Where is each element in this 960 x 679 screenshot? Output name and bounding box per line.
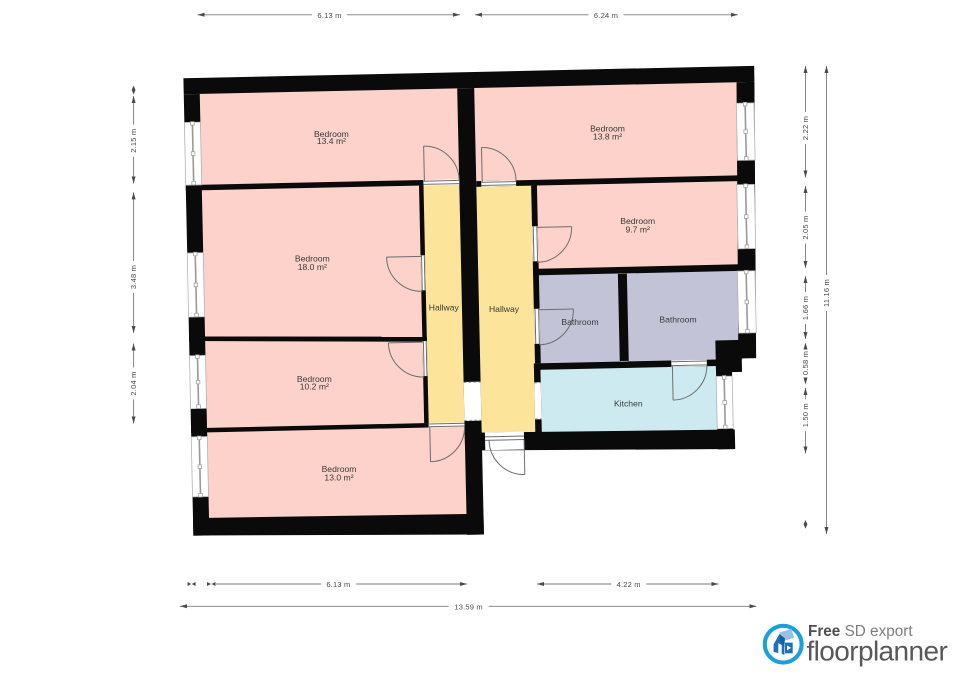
svg-text:13.4 m²: 13.4 m² bbox=[317, 136, 346, 146]
svg-text:1.50 m: 1.50 m bbox=[801, 403, 810, 427]
svg-text:Hallway: Hallway bbox=[489, 304, 520, 314]
svg-text:2.04 m: 2.04 m bbox=[129, 371, 138, 395]
svg-text:6.13 m: 6.13 m bbox=[317, 11, 341, 20]
svg-text:13.0 m²: 13.0 m² bbox=[324, 473, 353, 483]
svg-text:2.05 m: 2.05 m bbox=[801, 216, 810, 240]
svg-text:2.15 m: 2.15 m bbox=[129, 129, 138, 153]
svg-text:Kitchen: Kitchen bbox=[614, 398, 643, 408]
svg-text:floorplanner: floorplanner bbox=[807, 636, 948, 667]
svg-text:1.66 m: 1.66 m bbox=[801, 296, 810, 320]
svg-text:2.22 m: 2.22 m bbox=[801, 116, 810, 140]
svg-text:Bathroom: Bathroom bbox=[561, 317, 598, 327]
svg-text:6.13 m: 6.13 m bbox=[326, 580, 350, 589]
svg-text:9.7 m²: 9.7 m² bbox=[626, 224, 650, 234]
svg-text:18.0 m²: 18.0 m² bbox=[298, 262, 327, 272]
svg-text:3.48 m: 3.48 m bbox=[129, 265, 138, 289]
svg-text:Hallway: Hallway bbox=[429, 303, 460, 313]
svg-text:13.8 m²: 13.8 m² bbox=[593, 131, 622, 141]
svg-text:4.22 m: 4.22 m bbox=[617, 580, 641, 589]
svg-text:0.58 m: 0.58 m bbox=[801, 351, 810, 375]
svg-text:Bathroom: Bathroom bbox=[659, 314, 696, 324]
svg-text:13.59 m: 13.59 m bbox=[454, 603, 483, 612]
svg-text:10.2 m²: 10.2 m² bbox=[300, 382, 329, 392]
svg-text:6.24 m: 6.24 m bbox=[594, 11, 618, 20]
svg-text:11.16 m: 11.16 m bbox=[822, 279, 831, 307]
